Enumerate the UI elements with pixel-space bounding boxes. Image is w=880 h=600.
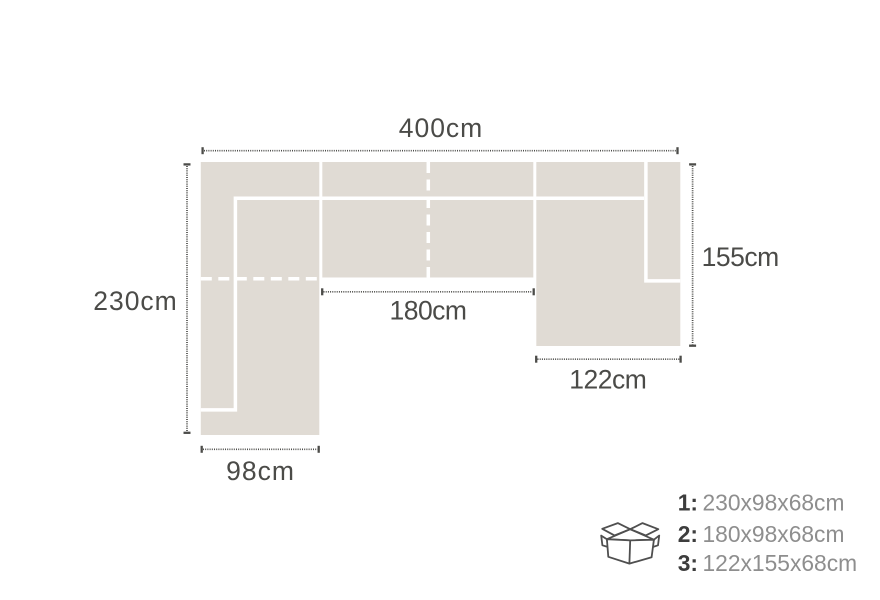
svg-text:400cm: 400cm <box>399 113 484 143</box>
svg-text:180x98x68cm: 180x98x68cm <box>703 521 845 547</box>
svg-text:122x155x68cm: 122x155x68cm <box>703 550 858 576</box>
svg-text:230cm: 230cm <box>93 286 178 316</box>
svg-text:2:: 2: <box>678 521 698 547</box>
svg-text:230x98x68cm: 230x98x68cm <box>703 489 845 515</box>
svg-text:98cm: 98cm <box>226 456 295 486</box>
svg-text:155cm: 155cm <box>702 242 779 272</box>
svg-text:180cm: 180cm <box>389 296 466 326</box>
svg-text:1:: 1: <box>678 489 698 515</box>
svg-text:122cm: 122cm <box>569 365 646 395</box>
svg-text:3:: 3: <box>678 550 698 576</box>
